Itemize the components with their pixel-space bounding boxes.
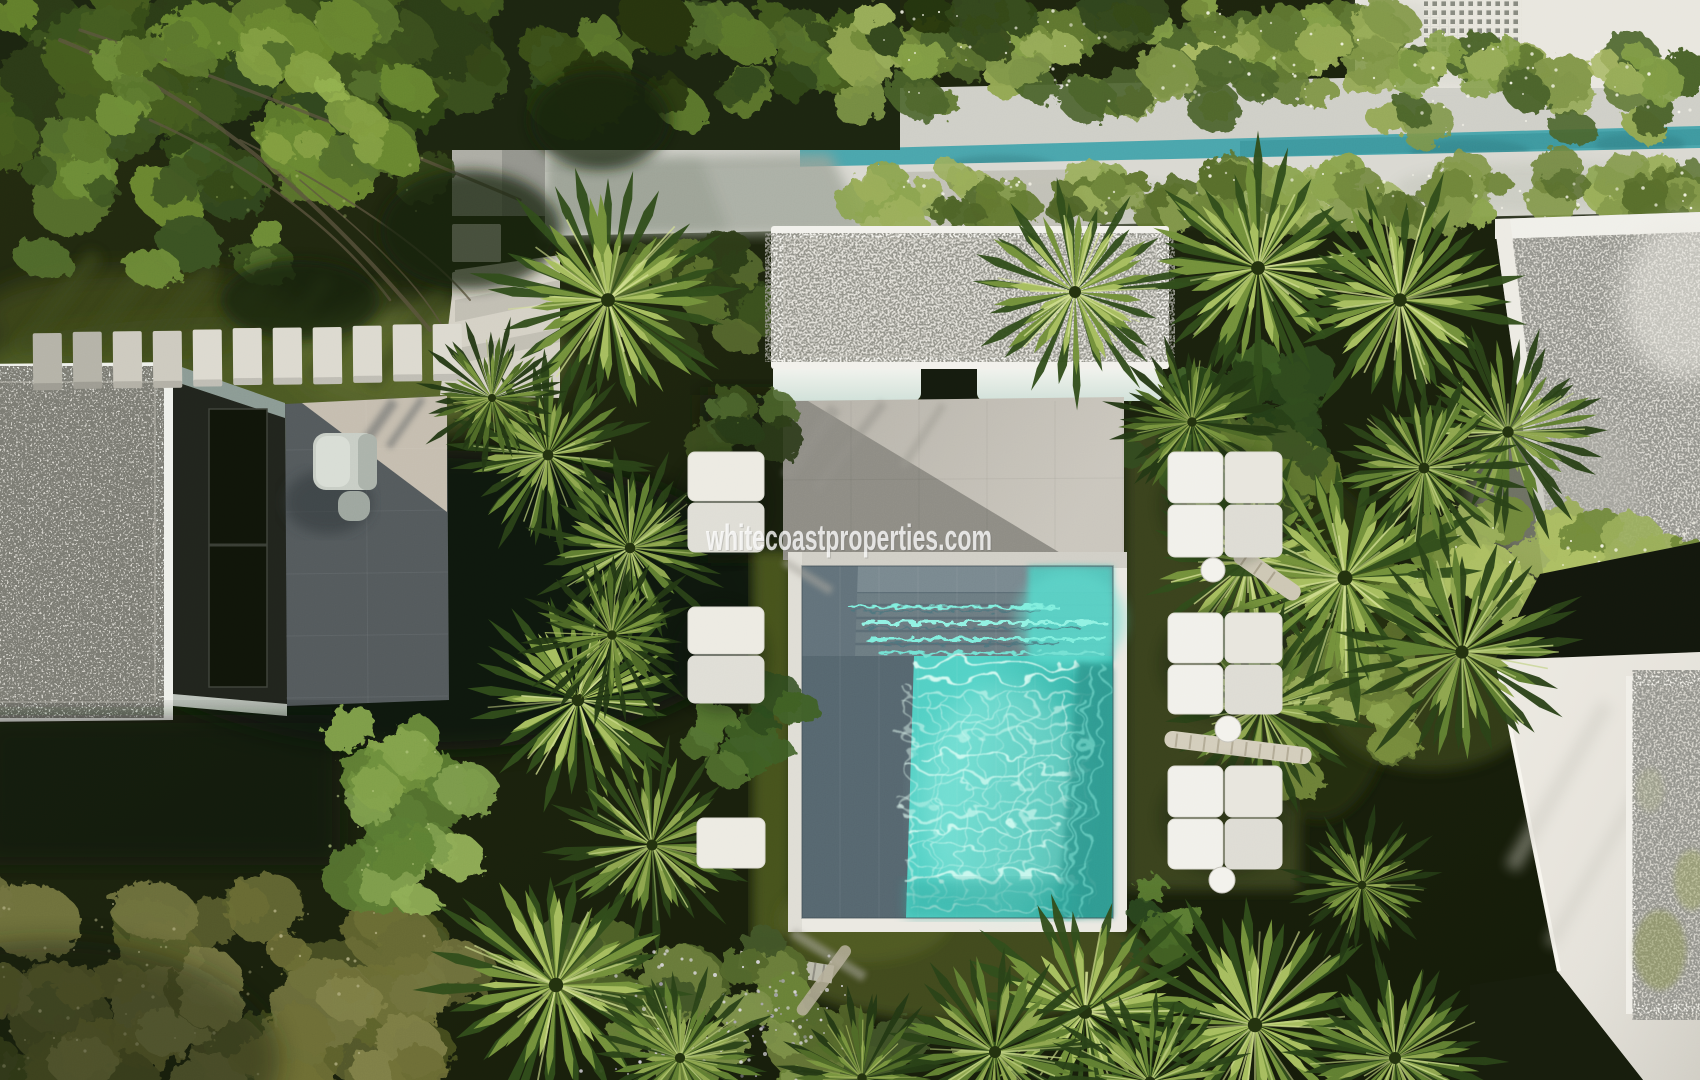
svg-text:whitecoastproperties.com: whitecoastproperties.com [705, 517, 992, 558]
